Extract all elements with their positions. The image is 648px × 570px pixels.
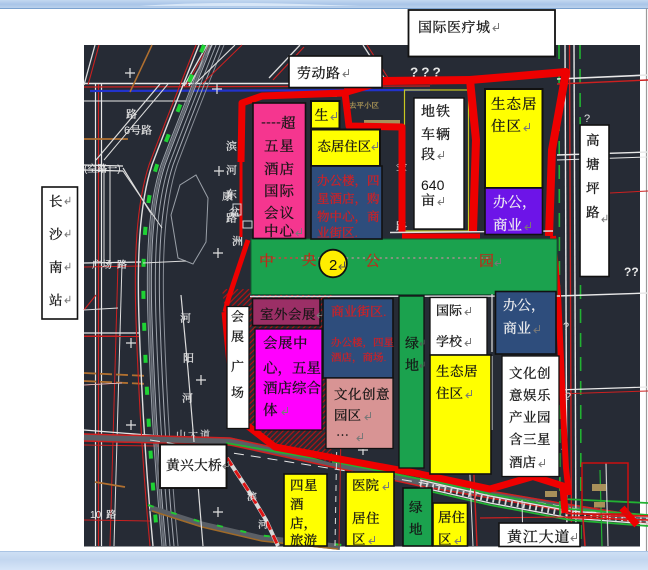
svg-text:??: ?? [624,265,639,279]
svg-text:0: 0 [96,510,102,521]
svg-text:.: . [384,352,387,364]
svg-text:2: 2 [329,257,337,274]
svg-text:): ) [117,164,120,175]
svg-text:?: ? [565,391,571,403]
svg-text:.: . [383,304,387,319]
svg-text:.: . [355,226,358,240]
svg-text:?: ? [563,321,569,333]
svg-text:----: ---- [261,114,281,131]
svg-text:6: 6 [124,125,130,137]
svg-text:640: 640 [421,177,445,193]
svg-text:?: ? [584,113,590,125]
